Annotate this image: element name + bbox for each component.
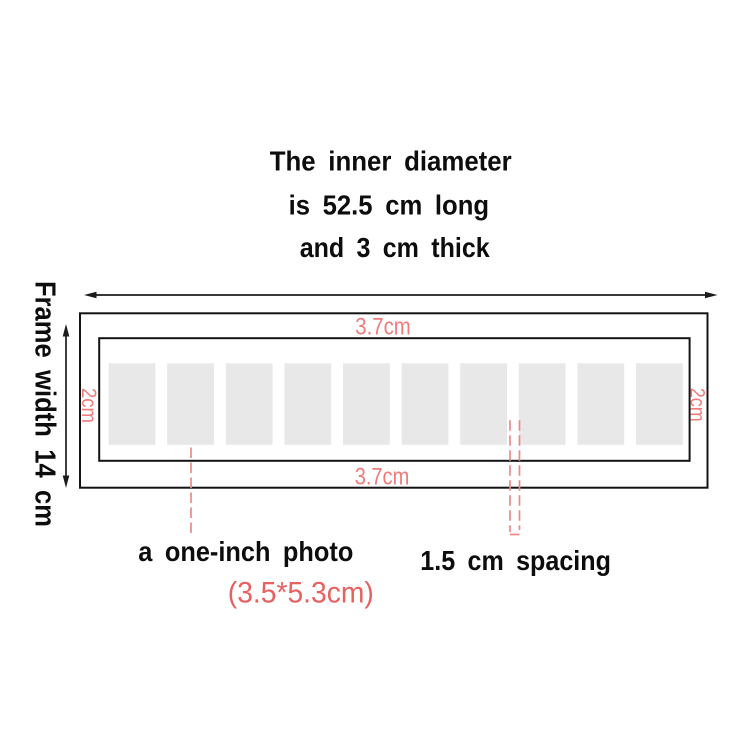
svg-text:3.7cm: 3.7cm [355,464,410,491]
svg-text:is 52.5 cm long: is 52.5 cm long [289,190,490,221]
svg-text:The inner diameter: The inner diameter [270,145,512,176]
svg-text:and 3 cm thick: and 3 cm thick [300,232,490,263]
svg-text:2cm: 2cm [686,388,709,422]
svg-text:3.7cm: 3.7cm [355,314,410,341]
svg-text:a one-inch photo: a one-inch photo [138,536,353,567]
svg-text:2cm: 2cm [77,388,100,423]
svg-text:1.5 cm spacing: 1.5 cm spacing [420,545,611,576]
svg-text:(3.5*5.3cm): (3.5*5.3cm) [228,577,374,610]
svg-text:Frame width 14 cm: Frame width 14 cm [29,281,61,527]
